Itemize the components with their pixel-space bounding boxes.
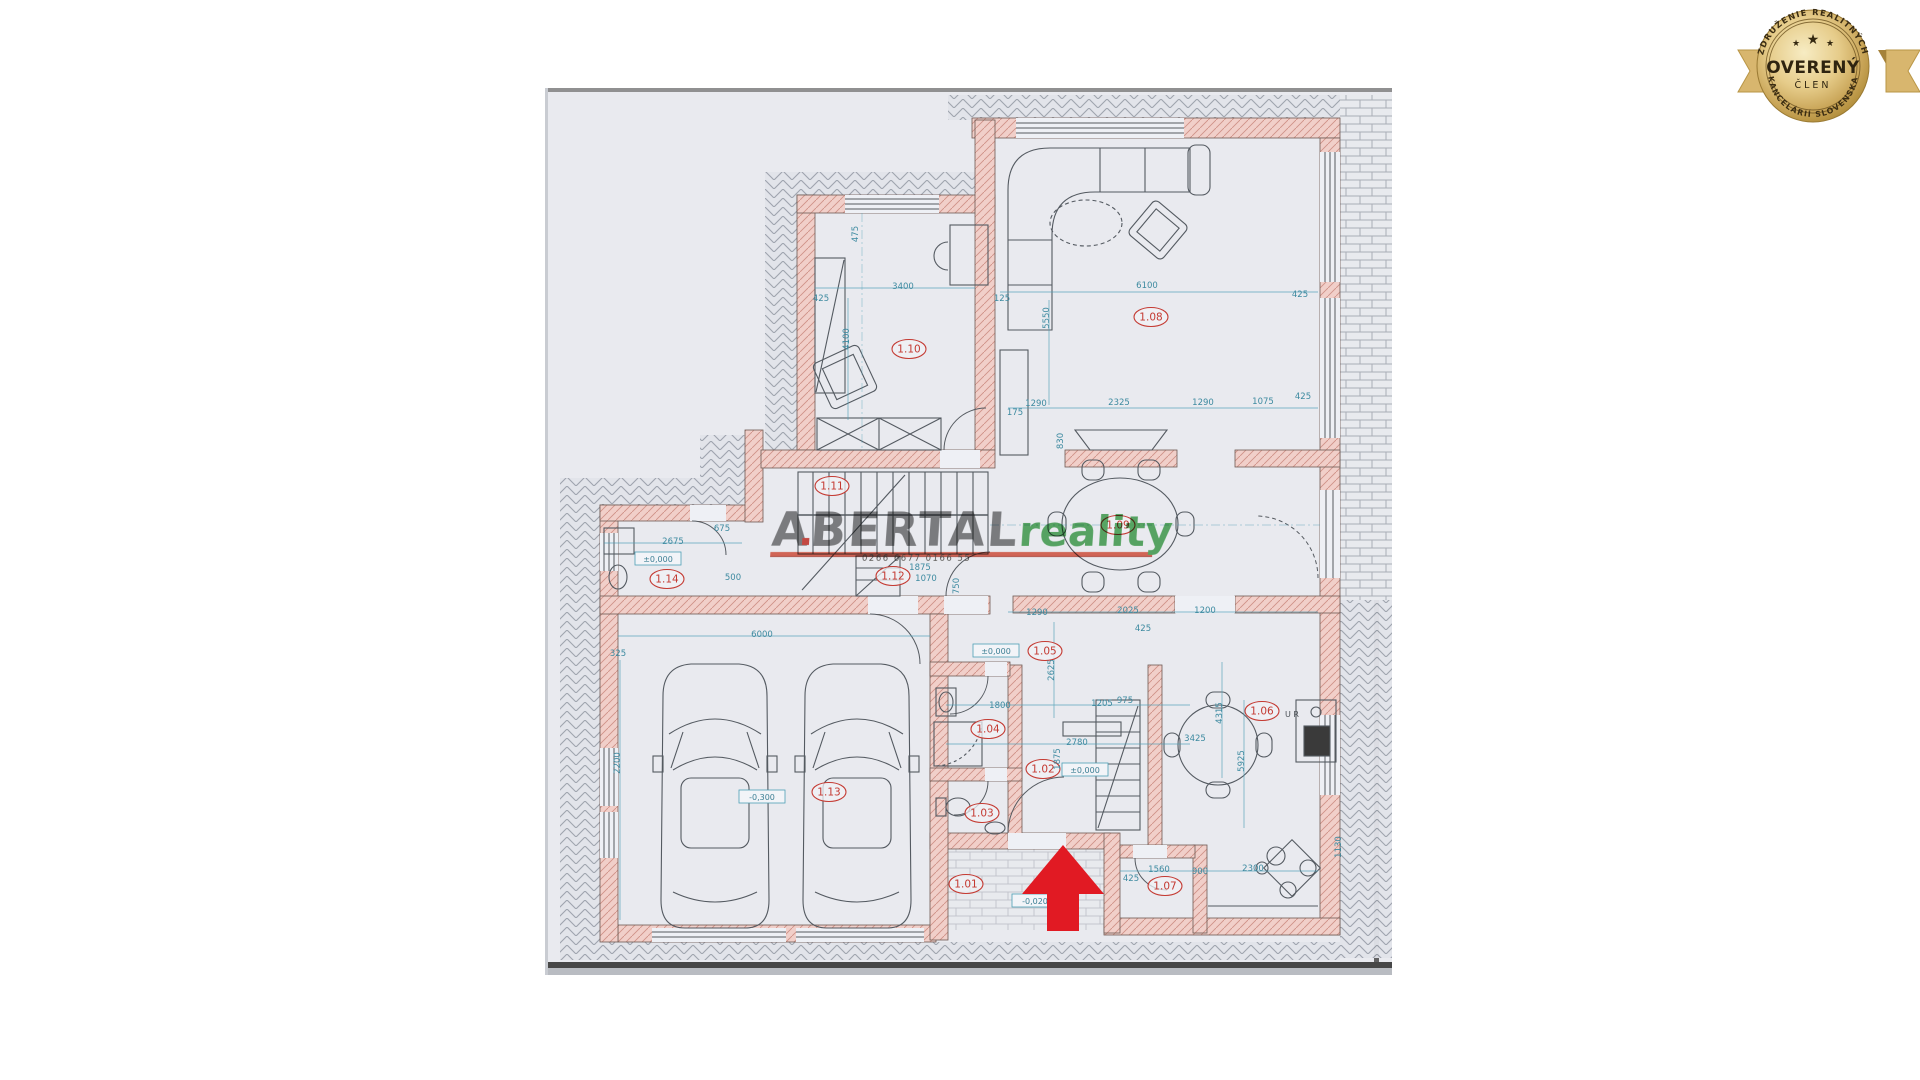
room-label: 1.05 — [1028, 642, 1062, 661]
dimension-label: 425 — [1135, 624, 1151, 634]
svg-text:★: ★ — [1826, 39, 1834, 49]
dimension-label: 425 — [1123, 874, 1139, 884]
room-label: 1.04 — [971, 720, 1005, 739]
dimension-label: 6000 — [751, 630, 773, 640]
dimension-label: 3400 — [892, 282, 914, 292]
neighbor-paving-hatch — [1340, 95, 1392, 600]
dimension-label: 2675 — [662, 537, 684, 547]
watermark-dot — [802, 538, 809, 545]
elevation-label: ±0,000 — [973, 644, 1019, 657]
dimension-label: 2200 — [613, 752, 623, 774]
room-label: 1.03 — [965, 804, 999, 823]
dimension-label: 5925 — [1237, 750, 1247, 772]
verified-member-badge: ZDRUŽENIE REALITNÝCH KANCELÁRIÍ SLOVENSK… — [1736, 2, 1920, 138]
svg-text:±0,000: ±0,000 — [1070, 766, 1100, 775]
dimension-label: 1070 — [915, 574, 937, 584]
elevation-label: ±0,000 — [1062, 763, 1108, 776]
svg-text:1.06: 1.06 — [1250, 706, 1274, 718]
dimension-label: 475 — [851, 226, 861, 242]
terrace-door — [1320, 490, 1340, 578]
elevation-label: ±0,000 — [635, 552, 681, 565]
room-label: 1.06 — [1245, 702, 1279, 721]
room-label: 1.08 — [1134, 308, 1168, 327]
elevation-label: -0,300 — [739, 790, 785, 803]
svg-text:-0,020: -0,020 — [1022, 897, 1048, 906]
dimension-label: 2780 — [1066, 738, 1088, 748]
svg-text:1.01: 1.01 — [954, 879, 977, 891]
room-label: 1.14 — [650, 570, 684, 589]
svg-text:1.13: 1.13 — [817, 787, 840, 799]
dimension-label: 3425 — [1184, 734, 1206, 744]
dimension-label: 1875 — [909, 563, 931, 573]
dimension-label: 1130 — [1334, 836, 1344, 858]
watermark-brand-abertal: ABERTAL — [770, 503, 1021, 558]
watermark: ABERTALreality 0266 6677 0166 55 — [770, 503, 1175, 556]
dimension-label: 675 — [714, 524, 730, 534]
svg-text:1.02: 1.02 — [1031, 764, 1054, 776]
watermark-brand-reality: reality — [1017, 507, 1174, 556]
dimension-label: 4315 — [1215, 702, 1225, 724]
window-room110 — [845, 195, 939, 213]
dimension-label: 5550 — [1042, 307, 1052, 329]
svg-text:1.04: 1.04 — [976, 724, 1000, 736]
room-label: 1.12 — [876, 567, 910, 586]
dimension-label: 1200 — [1194, 606, 1216, 616]
room-label: 1.11 — [815, 477, 849, 496]
badge-main-word: OVERENÝ — [1766, 56, 1860, 78]
dimension-label: 125 — [994, 294, 1010, 304]
dimension-label: 975 — [1117, 696, 1133, 706]
svg-text:-0,300: -0,300 — [749, 793, 775, 802]
dimension-label: 2300 — [1242, 864, 1264, 874]
window-garage-2 — [600, 812, 618, 858]
listing-image: 1.011.021.031.041.051.061.071.081.091.10… — [0, 0, 1920, 1080]
svg-text:1.14: 1.14 — [655, 574, 679, 586]
room-label: 1.01 — [949, 875, 983, 894]
dimension-label: 1290 — [1025, 399, 1047, 409]
dimension-label: 6100 — [1136, 281, 1158, 291]
plan-note: U R — [1285, 710, 1299, 719]
room-label: 1.10 — [892, 340, 926, 359]
garage-door-2 — [796, 928, 924, 942]
svg-text:1.12: 1.12 — [881, 571, 904, 583]
svg-text:★: ★ — [1807, 32, 1820, 48]
dimension-label: 2625 — [1047, 659, 1057, 681]
dimension-label: 1560 — [1148, 865, 1170, 875]
svg-text:1.05: 1.05 — [1033, 646, 1056, 658]
svg-text:★: ★ — [1792, 39, 1800, 49]
dimension-label: 1800 — [989, 701, 1011, 711]
room-label: 1.13 — [812, 783, 846, 802]
svg-text:1.07: 1.07 — [1153, 881, 1176, 893]
dimension-label: 425 — [813, 294, 829, 304]
svg-text:1.08: 1.08 — [1139, 312, 1162, 324]
window-living-right-1 — [1320, 152, 1340, 282]
dimension-label: 830 — [1056, 433, 1066, 449]
window-living-right-2 — [1320, 298, 1340, 438]
dimension-label: 1205 — [1091, 699, 1113, 709]
dimension-label: 4100 — [842, 328, 852, 350]
svg-text:±0,000: ±0,000 — [643, 555, 673, 564]
dimension-label: 175 — [1007, 408, 1023, 418]
badge-seal: ZDRUŽENIE REALITNÝCH KANCELÁRIÍ SLOVENSK… — [1755, 7, 1870, 122]
window-living-top — [1016, 118, 1184, 138]
svg-text:1.11: 1.11 — [820, 481, 843, 493]
dimension-label: 2025 — [1117, 606, 1139, 616]
dimension-label: 425 — [1295, 392, 1311, 402]
dimension-label: 1290 — [1192, 398, 1214, 408]
dimension-label: 325 — [610, 649, 626, 659]
dimension-label: 1290 — [1026, 608, 1048, 618]
dimension-label: 750 — [952, 578, 962, 594]
svg-text:1.10: 1.10 — [897, 344, 920, 356]
dimension-label: 1875 — [1053, 748, 1063, 770]
badge-sub-word: ČLEN — [1794, 79, 1831, 91]
watermark-phone: 0266 6677 0166 55 — [862, 554, 972, 564]
dimension-label: 1075 — [1252, 397, 1274, 407]
dimension-label: 500 — [725, 573, 741, 583]
svg-text:±0,000: ±0,000 — [981, 647, 1011, 656]
room-label: 1.07 — [1148, 877, 1182, 896]
dimension-label: 900 — [1192, 867, 1208, 877]
dimension-label: 2325 — [1108, 398, 1130, 408]
dimension-label: 425 — [1292, 290, 1308, 300]
garage-door-1 — [652, 928, 786, 942]
svg-text:1.03: 1.03 — [970, 808, 993, 820]
